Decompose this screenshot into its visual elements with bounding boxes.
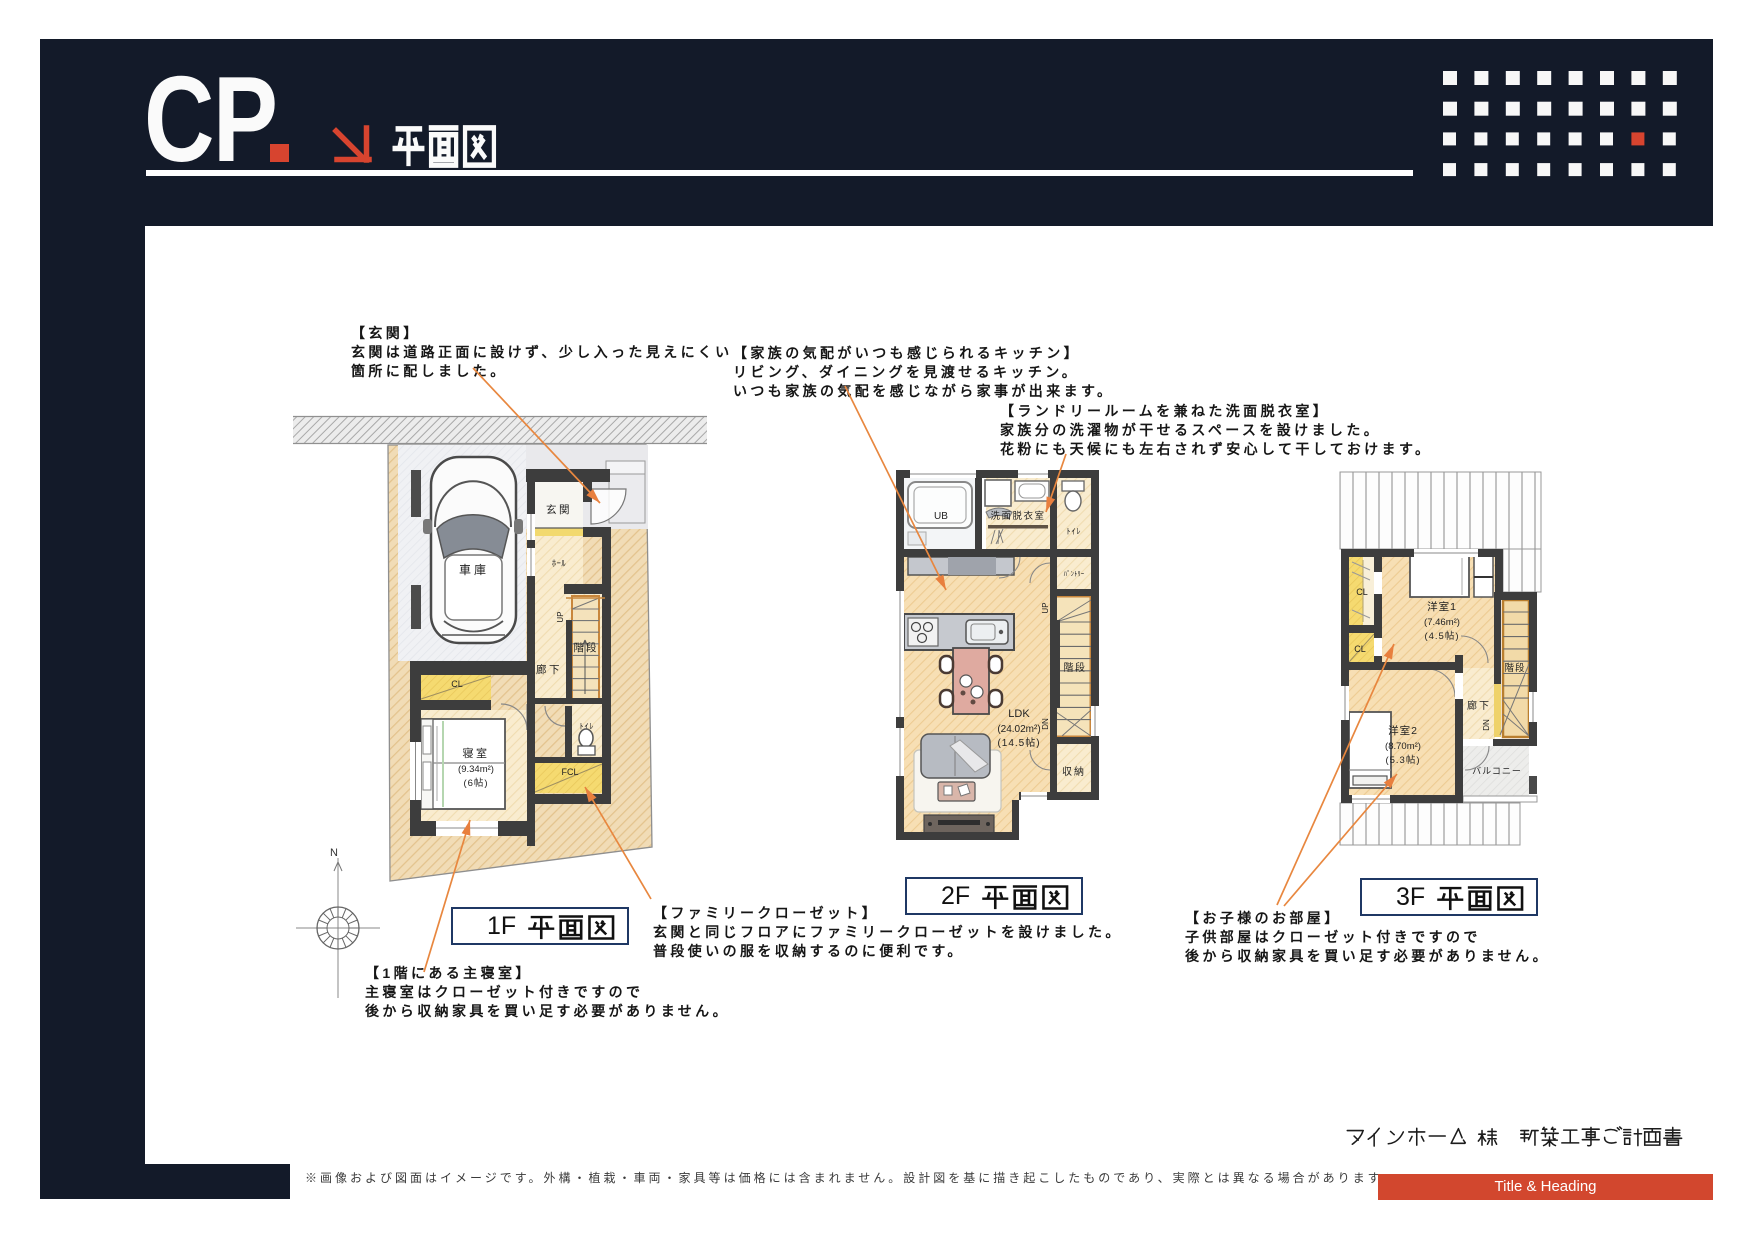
svg-text:(14.5帖): (14.5帖) [997,736,1040,749]
svg-text:CL: CL [1354,644,1366,654]
svg-text:車庫: 車庫 [459,563,489,577]
svg-text:洋室1: 洋室1 [1427,600,1457,613]
svg-text:DN: DN [1041,718,1050,730]
svg-text:収納: 収納 [1062,765,1086,778]
svg-text:N: N [330,847,338,859]
svg-text:DN: DN [1482,719,1491,731]
svg-text:ﾊﾟﾝﾄﾘｰ: ﾊﾟﾝﾄﾘｰ [1064,570,1085,578]
svg-text:FCL: FCL [561,767,578,777]
svg-text:(7.46m²): (7.46m²) [1424,617,1460,628]
svg-text:(5.3帖): (5.3帖) [1385,754,1420,766]
svg-text:(9.34m²): (9.34m²) [458,764,494,775]
svg-text:CL: CL [451,679,463,689]
svg-text:UP: UP [1041,602,1050,613]
svg-text:洋室2: 洋室2 [1388,724,1418,737]
svg-text:UP: UP [556,611,565,622]
svg-text:階段: 階段 [1504,662,1525,674]
svg-text:バルコニー: バルコニー [1472,766,1522,776]
svg-text:(4.5帖): (4.5帖) [1424,630,1459,642]
svg-text:LDK: LDK [1008,708,1030,720]
svg-text:寝室: 寝室 [463,746,490,760]
svg-text:階段: 階段 [1064,661,1087,674]
svg-text:廊下: 廊下 [1467,699,1491,712]
svg-text:(24.02m²): (24.02m²) [997,724,1040,735]
svg-text:洗面脱衣室: 洗面脱衣室 [990,510,1045,522]
svg-text:廊下: 廊下 [536,663,562,676]
svg-text:(6帖): (6帖) [463,777,488,789]
svg-text:ﾎｰﾙ: ﾎｰﾙ [552,558,567,568]
svg-text:(8.70m²): (8.70m²) [1385,741,1421,752]
svg-text:玄関: 玄関 [546,503,572,516]
svg-text:階段: 階段 [574,641,599,654]
svg-text:UB: UB [934,511,948,522]
svg-text:CL: CL [1356,587,1368,597]
svg-text:ﾄｲﾚ: ﾄｲﾚ [1067,527,1082,536]
